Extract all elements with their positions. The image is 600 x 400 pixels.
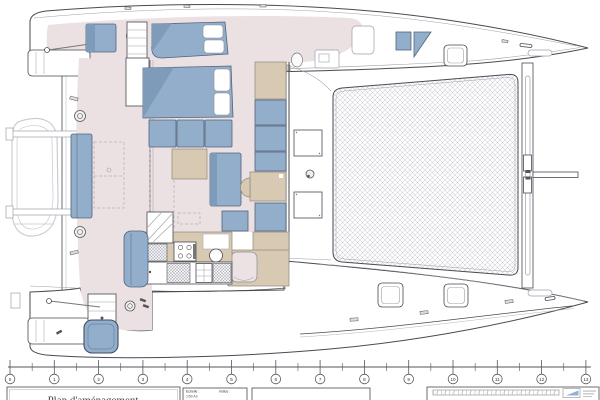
seat-cushion <box>222 211 248 231</box>
bench-cushion <box>255 100 286 125</box>
ruler-mark-number: 4 <box>186 377 189 382</box>
companionway-port <box>127 22 147 62</box>
scale-value: 1/50 A3 <box>186 395 198 399</box>
helm-seat <box>124 231 148 287</box>
ruler-mark-number: 12 <box>539 377 545 382</box>
davit-bracket <box>11 293 20 308</box>
cabinet-vent-front <box>213 264 231 283</box>
empty-box <box>252 388 370 400</box>
pillow <box>204 40 224 53</box>
deck-locker <box>294 192 322 218</box>
ruler-mark-number: 13 <box>583 377 589 382</box>
catamaran-deck-plan-page: 012345678910111213 Plan d'aménagement Ec… <box>0 0 600 400</box>
catamaran-deck-plan-drawing: 012345678910111213 Plan d'aménagement Ec… <box>0 0 600 400</box>
deck-locker <box>294 130 322 156</box>
ruler-mark-number: 9 <box>407 377 410 382</box>
shower-port <box>315 50 339 68</box>
toilet-port <box>292 53 303 67</box>
chart-counter <box>255 62 286 99</box>
foredeck-trampoline-area <box>333 63 578 288</box>
deck-bollard <box>306 170 314 178</box>
stove <box>174 242 196 261</box>
cockpit-bench <box>71 134 92 218</box>
fine-print-line <box>583 396 592 397</box>
bench-cushion <box>255 203 286 231</box>
saloon-table <box>172 149 207 179</box>
cabinet-vent-front <box>167 264 190 283</box>
bench-cushion <box>255 126 286 151</box>
aft-crossbeam <box>62 74 66 292</box>
jib-track-starboard <box>528 290 552 296</box>
ruler-mark-number: 8 <box>363 377 366 382</box>
pillow <box>214 69 230 91</box>
trampoline-net <box>333 74 518 275</box>
sofa-cushion <box>149 120 176 147</box>
winch <box>75 111 86 122</box>
sink <box>210 249 223 262</box>
index-label: Indice : <box>219 390 230 394</box>
ruler-mark-number: 3 <box>142 377 145 382</box>
hull-stairs <box>147 212 173 243</box>
ruler-mark-number: 11 <box>495 377 500 382</box>
jib-track-port <box>528 50 552 56</box>
graphic-scale-bar <box>433 390 559 395</box>
scale-ruler: 012345678910111213 <box>5 360 591 384</box>
sofa-cushion <box>177 120 204 147</box>
pillow <box>214 93 230 115</box>
sofa-cushion <box>205 120 232 147</box>
title-block: Plan d'aménagement Echelle : 1/50 A3 Ind… <box>7 387 599 400</box>
ruler-mark-number: 6 <box>275 377 278 382</box>
bench-cushion <box>255 152 286 171</box>
ruler-mark-number: 1 <box>53 377 56 382</box>
drawing-title: Plan d'aménagement <box>48 395 139 400</box>
cabinet-vent-front <box>146 244 167 261</box>
ruler-mark-number: 5 <box>230 377 233 382</box>
ruler-mark-number: 10 <box>450 377 456 382</box>
ruler-mark-number: 7 <box>319 377 322 382</box>
ruler-mark-number: 2 <box>97 377 100 382</box>
fine-print-line <box>583 393 594 394</box>
cutting-board <box>203 234 229 249</box>
winch <box>125 301 135 311</box>
stern-locker-seat <box>84 320 118 353</box>
fine-print-line <box>583 391 596 392</box>
pillow <box>203 25 223 38</box>
foredeck-seat <box>396 32 411 50</box>
forward-locker-port <box>352 26 374 54</box>
bowsprit <box>533 172 578 178</box>
ruler-mark-number: 0 <box>9 377 12 382</box>
winch <box>75 227 86 238</box>
scale-label: Echelle : <box>186 390 199 394</box>
